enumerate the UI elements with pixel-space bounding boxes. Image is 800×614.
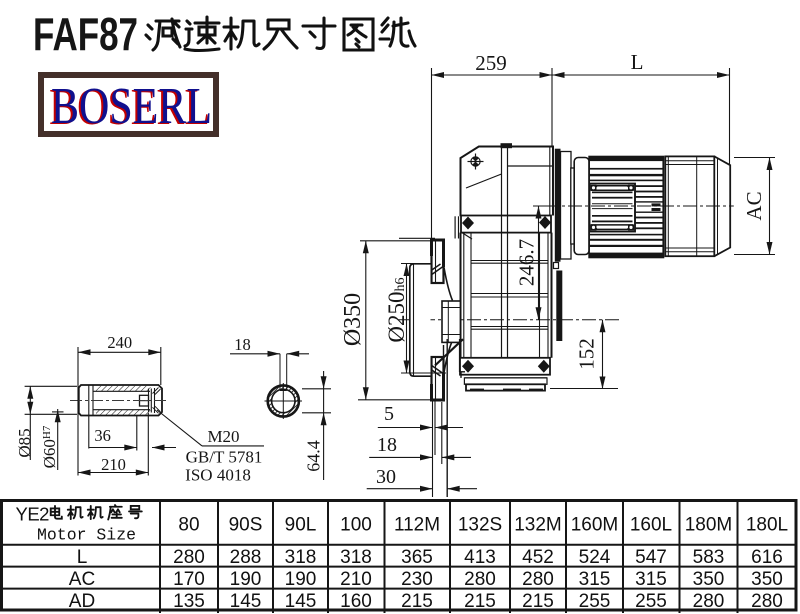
svg-text:280: 280 — [173, 547, 205, 568]
svg-text:259: 259 — [475, 51, 507, 75]
svg-text:80: 80 — [178, 515, 199, 536]
svg-text:280: 280 — [751, 591, 783, 612]
svg-text:135: 135 — [173, 591, 205, 612]
svg-text:ISO 4018: ISO 4018 — [185, 466, 251, 485]
svg-text:GB/T 5781: GB/T 5781 — [186, 448, 263, 467]
svg-text:AC: AC — [742, 191, 766, 220]
svg-text:215: 215 — [401, 591, 433, 612]
svg-text:145: 145 — [230, 591, 262, 612]
svg-text:30: 30 — [376, 466, 396, 488]
svg-text:90S: 90S — [229, 515, 263, 536]
svg-text:413: 413 — [464, 547, 496, 568]
svg-text:452: 452 — [522, 547, 554, 568]
svg-text:Ø60H7: Ø60H7 — [40, 425, 59, 468]
svg-text:315: 315 — [635, 569, 667, 590]
svg-text:AD: AD — [69, 591, 95, 612]
svg-text:180M: 180M — [685, 515, 733, 536]
svg-text:132S: 132S — [458, 515, 502, 536]
svg-text:L: L — [77, 547, 88, 568]
svg-text:152: 152 — [575, 338, 599, 370]
svg-text:18: 18 — [377, 434, 397, 456]
svg-text:255: 255 — [579, 591, 611, 612]
svg-text:246.7: 246.7 — [515, 239, 539, 286]
svg-text:Motor Size: Motor Size — [37, 526, 136, 545]
svg-text:160M: 160M — [571, 515, 619, 536]
svg-text:230: 230 — [401, 569, 433, 590]
svg-text:180L: 180L — [746, 515, 788, 536]
svg-text:315: 315 — [579, 569, 611, 590]
svg-text:255: 255 — [635, 591, 667, 612]
svg-text:215: 215 — [522, 591, 554, 612]
svg-text:YE2: YE2 — [16, 504, 50, 525]
svg-text:160: 160 — [340, 591, 372, 612]
svg-text:190: 190 — [230, 569, 262, 590]
svg-text:18: 18 — [234, 335, 251, 354]
svg-text:365: 365 — [401, 547, 433, 568]
svg-text:5: 5 — [384, 403, 394, 425]
svg-text:100: 100 — [340, 515, 372, 536]
svg-text:280: 280 — [693, 591, 725, 612]
svg-text:145: 145 — [285, 591, 317, 612]
svg-text:350: 350 — [693, 569, 725, 590]
svg-text:215: 215 — [464, 591, 496, 612]
svg-text:L: L — [631, 50, 644, 74]
svg-text:210: 210 — [340, 569, 372, 590]
svg-text:616: 616 — [751, 547, 783, 568]
svg-text:Ø250h6: Ø250h6 — [384, 277, 409, 342]
svg-text:Ø85: Ø85 — [15, 428, 34, 457]
svg-text:Ø350: Ø350 — [340, 293, 366, 346]
svg-text:240: 240 — [107, 333, 132, 352]
svg-text:112M: 112M — [394, 515, 440, 536]
svg-text:36: 36 — [94, 426, 111, 445]
svg-text:90L: 90L — [285, 515, 317, 536]
svg-text:64.4: 64.4 — [304, 440, 324, 472]
svg-text:M20: M20 — [207, 427, 239, 446]
svg-text:524: 524 — [579, 547, 611, 568]
svg-text:583: 583 — [693, 547, 725, 568]
svg-text:132M: 132M — [514, 515, 562, 536]
svg-text:280: 280 — [522, 569, 554, 590]
svg-text:350: 350 — [751, 569, 783, 590]
svg-text:170: 170 — [173, 569, 205, 590]
svg-text:547: 547 — [635, 547, 667, 568]
svg-text:318: 318 — [340, 547, 372, 568]
svg-text:318: 318 — [285, 547, 317, 568]
svg-text:210: 210 — [101, 455, 126, 474]
svg-text:190: 190 — [285, 569, 317, 590]
svg-text:AC: AC — [69, 569, 95, 590]
svg-text:280: 280 — [464, 569, 496, 590]
svg-text:160L: 160L — [630, 515, 672, 536]
svg-text:288: 288 — [230, 547, 262, 568]
